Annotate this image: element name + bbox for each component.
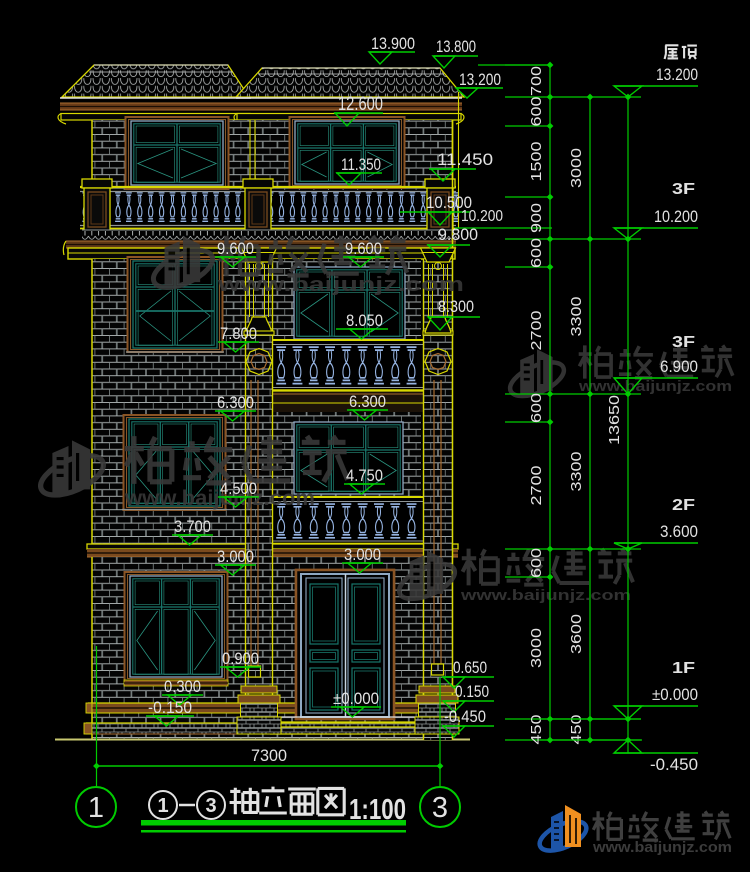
svg-text:600: 600 [528,97,545,127]
svg-text:13650: 13650 [606,395,623,445]
svg-text:0.900: 0.900 [222,649,259,668]
svg-text:11.350: 11.350 [341,155,381,174]
svg-text:-0.450: -0.450 [650,755,698,774]
svg-text:0.150: 0.150 [455,682,489,701]
svg-text:3: 3 [205,795,216,817]
svg-text:900: 900 [528,203,545,233]
svg-text:±0.000: ±0.000 [333,689,379,708]
svg-text:7.800: 7.800 [220,324,257,343]
svg-text:3F: 3F [672,181,695,198]
svg-text:www.baijunjz.com: www.baijunjz.com [460,587,631,604]
svg-text:600: 600 [528,548,545,578]
svg-text:3: 3 [432,792,448,824]
svg-text:10.200: 10.200 [461,208,503,225]
svg-text:13.800: 13.800 [436,37,476,56]
svg-text:0.650: 0.650 [453,658,487,677]
svg-text:-0.450: -0.450 [444,707,486,726]
svg-text:9.600: 9.600 [217,239,254,258]
svg-text:13.200: 13.200 [459,70,501,89]
svg-text:3000: 3000 [528,628,545,668]
svg-text:3300: 3300 [568,452,585,492]
svg-text:3300: 3300 [568,297,585,337]
svg-text:12.600: 12.600 [338,94,383,115]
svg-text:3.000: 3.000 [217,547,254,566]
svg-text:13.900: 13.900 [371,34,415,53]
svg-text:6.900: 6.900 [660,357,698,376]
svg-text:1: 1 [88,792,104,824]
svg-text:600: 600 [528,238,545,268]
svg-text:www.baijunjz.com: www.baijunjz.com [217,274,464,296]
svg-text:8.300: 8.300 [438,297,474,316]
svg-text:±0.000: ±0.000 [652,685,698,704]
svg-text:3.000: 3.000 [344,545,381,564]
svg-text:0.300: 0.300 [164,677,201,696]
svg-text:6.300: 6.300 [217,393,254,412]
svg-text:www.baijunjz.com: www.baijunjz.com [592,839,732,856]
svg-text:2700: 2700 [528,466,545,506]
svg-text:9.800: 9.800 [438,225,478,244]
svg-text:9.600: 9.600 [345,239,382,258]
svg-text:3F: 3F [672,334,695,351]
svg-text:6.300: 6.300 [349,392,386,411]
svg-text:700: 700 [528,66,545,96]
svg-text:3.600: 3.600 [660,522,698,541]
svg-text:3000: 3000 [568,148,585,188]
svg-text:3600: 3600 [568,614,585,654]
svg-text:1F: 1F [672,660,695,677]
svg-text:-0.150: -0.150 [148,698,192,717]
svg-text:8.050: 8.050 [346,311,383,330]
svg-text:1: 1 [157,795,168,817]
svg-text:7300: 7300 [251,746,287,765]
svg-text:11.450: 11.450 [437,150,493,169]
svg-text:4.500: 4.500 [220,479,257,498]
svg-text:www.baijunjz.com: www.baijunjz.com [578,378,732,395]
svg-text:3.700: 3.700 [174,517,211,536]
svg-text:13.200: 13.200 [656,65,698,84]
svg-text:10.200: 10.200 [654,207,698,226]
svg-text:1500: 1500 [528,142,545,182]
svg-text:2700: 2700 [528,311,545,351]
svg-text:4.750: 4.750 [346,466,383,485]
svg-text:2F: 2F [672,497,695,514]
svg-text:600: 600 [528,393,545,423]
